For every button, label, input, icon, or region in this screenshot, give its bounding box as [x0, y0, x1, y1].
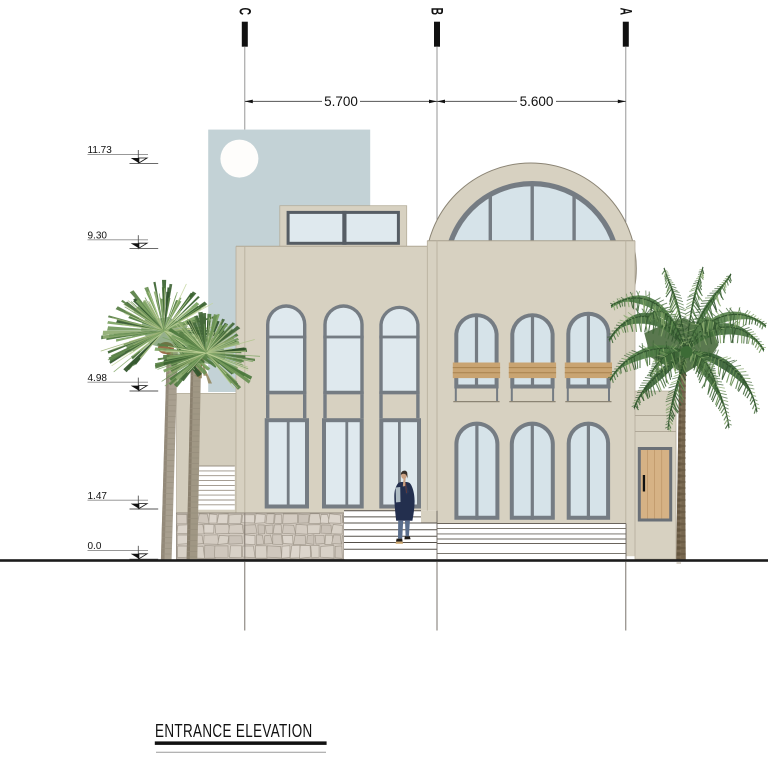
svg-text:5.600: 5.600	[520, 94, 554, 109]
svg-text:A: A	[617, 8, 635, 15]
svg-text:C: C	[236, 8, 254, 15]
svg-text:B: B	[428, 8, 446, 15]
svg-text:ENTRANCE ELEVATION: ENTRANCE ELEVATION	[155, 721, 313, 742]
svg-text:5.700: 5.700	[324, 94, 358, 109]
